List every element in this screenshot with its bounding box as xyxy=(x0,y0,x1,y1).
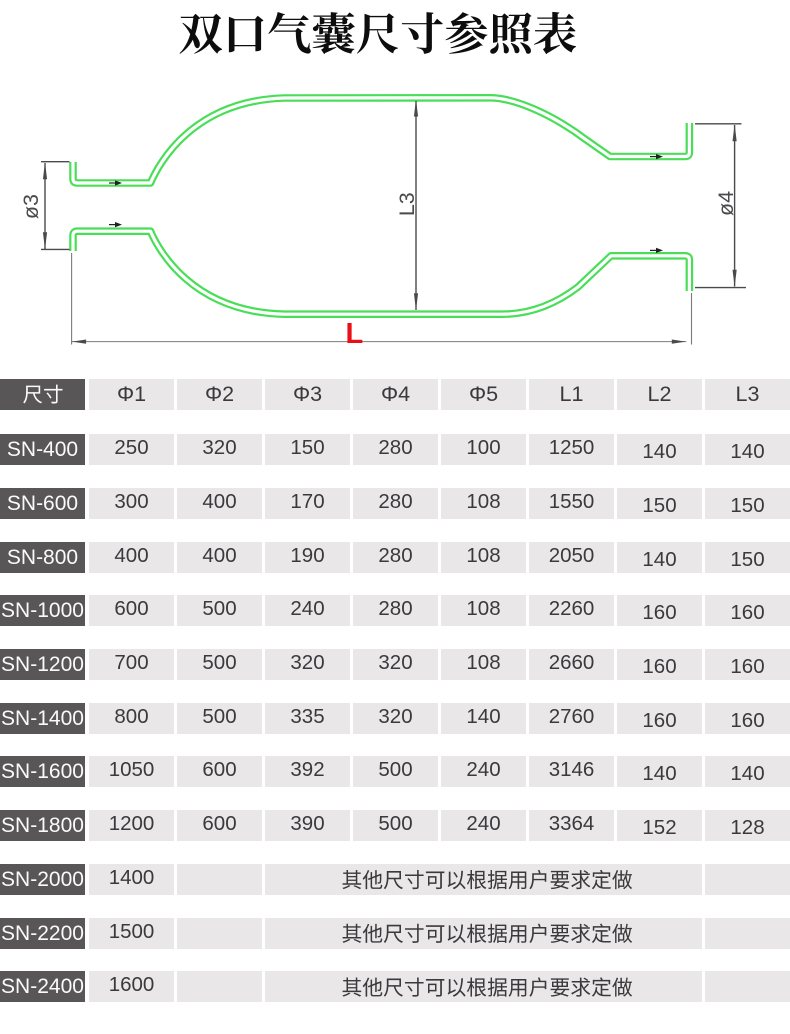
svg-text:ø4: ø4 xyxy=(714,191,738,216)
svg-text:L3: L3 xyxy=(395,192,419,216)
svg-text:L: L xyxy=(346,318,364,350)
svg-text:ø3: ø3 xyxy=(19,194,43,219)
